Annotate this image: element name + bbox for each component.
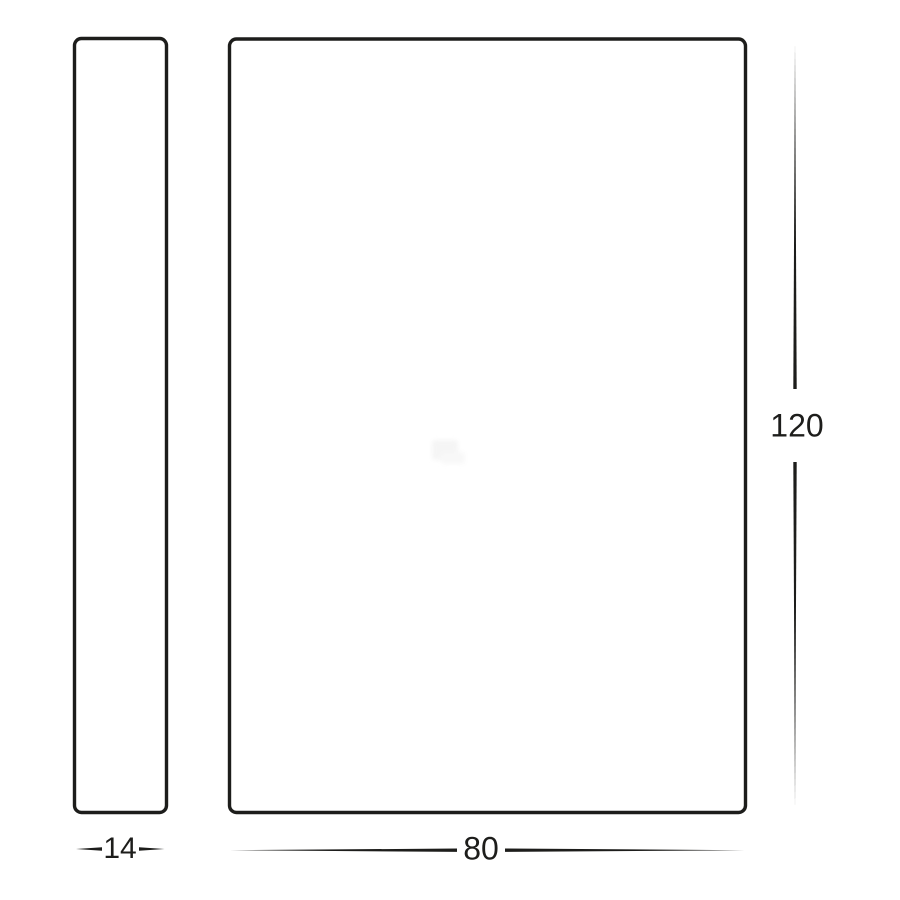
width-dimension-label: 80 xyxy=(463,831,499,867)
width-dimension: 80 xyxy=(230,831,745,867)
watermark-blob-2 xyxy=(441,452,465,464)
height-arrow-bottom-icon xyxy=(793,462,796,808)
front-view-outline xyxy=(230,39,746,813)
height-dimension-label: 120 xyxy=(770,408,823,444)
width-arrow-right-icon xyxy=(505,849,745,852)
depth-dimension: 14 xyxy=(76,832,165,865)
dimension-drawing: 14 80 120 xyxy=(0,0,900,900)
side-view-outline xyxy=(75,39,167,813)
height-arrow-top-icon xyxy=(793,43,796,389)
depth-arrow-left-icon xyxy=(76,847,102,850)
width-arrow-left-icon xyxy=(230,849,457,852)
drawing-canvas: 14 80 120 xyxy=(0,0,900,900)
depth-dimension-label: 14 xyxy=(103,832,136,865)
depth-arrow-right-icon xyxy=(139,847,165,850)
watermark xyxy=(432,440,465,464)
height-dimension: 120 xyxy=(770,43,823,808)
